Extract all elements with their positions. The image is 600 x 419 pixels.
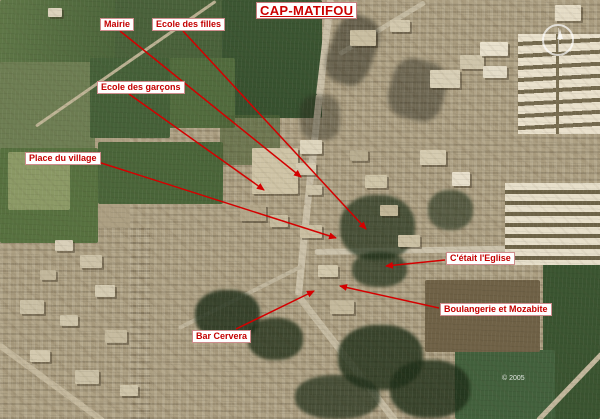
arrow-ecole-des-filles — [183, 31, 366, 229]
label-mairie: Mairie — [100, 18, 134, 31]
arrow-bar-cervera — [236, 291, 314, 329]
arrow-eglise — [386, 260, 445, 266]
label-ecole-des-garcons: Ecole des garçons — [97, 81, 185, 94]
label-ecole-des-filles: Ecole des filles — [152, 18, 225, 31]
label-place-du-village: Place du village — [25, 152, 101, 165]
arrow-mairie — [120, 31, 301, 177]
label-eglise: C'était l'Eglise — [446, 252, 515, 265]
page-title: CAP-MATIFOU — [256, 2, 357, 19]
label-bar-cervera: Bar Cervera — [192, 330, 251, 343]
arrow-place-du-village — [98, 162, 336, 238]
arrow-ecole-des-garcons — [129, 94, 264, 190]
label-boulangerie: Boulangerie et Mozabite — [440, 303, 552, 316]
arrow-svg — [0, 0, 600, 419]
annotated-satellite-map: © 2005 MairieEcole des fillesEcole des g… — [0, 0, 600, 419]
arrow-boulangerie — [340, 286, 439, 308]
